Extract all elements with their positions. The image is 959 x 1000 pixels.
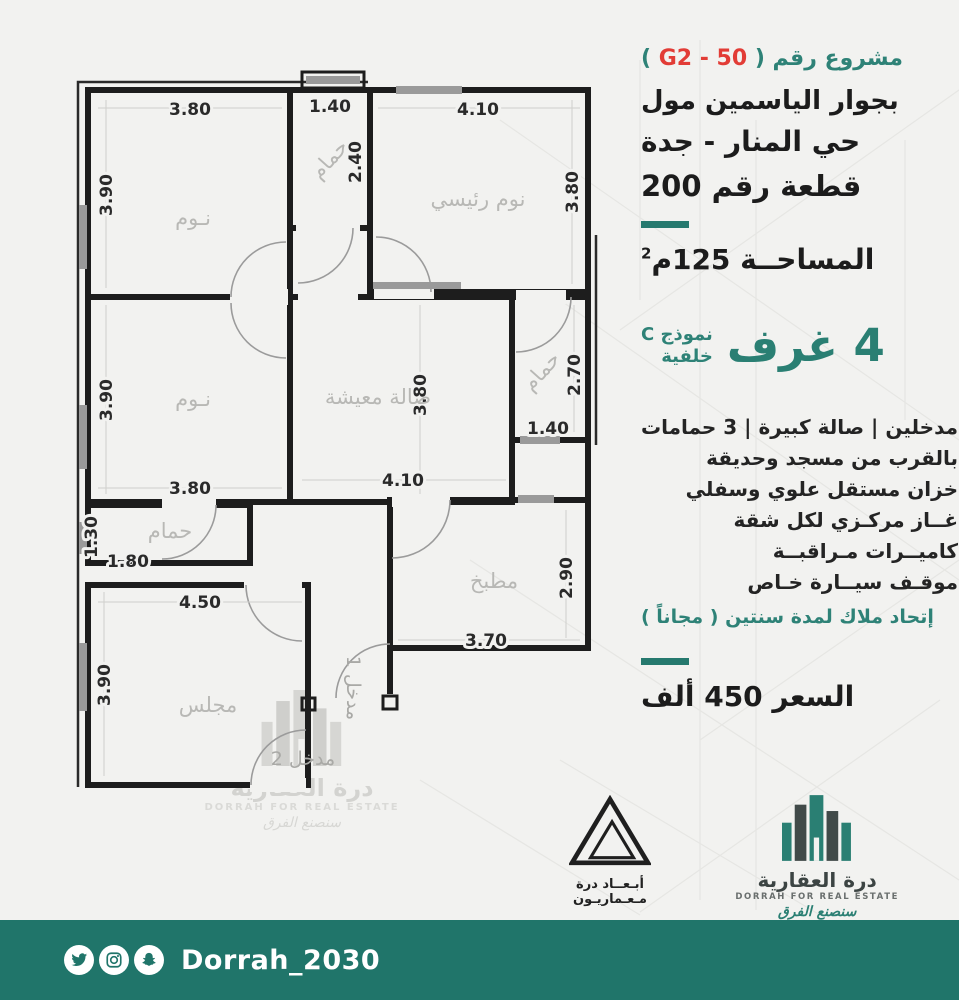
rooms-count: 4 غرف	[727, 322, 885, 370]
dorrah-english-name: DORRAH FOR REAL ESTATE	[735, 892, 899, 902]
dim-master-height: 3.80	[563, 171, 583, 213]
address-line-1: بجوار الياسمين مول	[641, 85, 899, 117]
dorrah-logo: درة العقارية DORRAH FOR REAL ESTATE سنصن…	[735, 795, 899, 920]
dim-bedroom-2-height: 3.90	[97, 379, 117, 421]
instagram-icon	[99, 945, 129, 975]
room-label-bedroom-2: نـوم	[175, 387, 211, 411]
dorrah-arabic-name: درة العقارية	[735, 868, 899, 892]
door-arc-bath-right	[516, 297, 571, 352]
social-handle: Dorrah_2030	[181, 945, 380, 976]
room-label-bath-right: حمام	[517, 347, 565, 396]
dim-bath-right-height: 2.70	[565, 354, 585, 396]
door-arc-kitchen	[392, 500, 450, 558]
teal-divider-top	[641, 221, 689, 228]
label-entrance-2: مدخل 2	[271, 748, 335, 770]
area-superscript: 2	[641, 245, 651, 263]
room-label-bath-bottom: حمام	[148, 519, 193, 543]
dim-kitchen-height: 2.90	[557, 557, 577, 599]
feature-item: موقـف سيــارة خـاص	[641, 567, 958, 598]
feature-item: بالقرب من مسجد وحديقة	[641, 443, 958, 474]
feature-item: مدخلين | صالة كبيرة | 3 حمامات	[641, 412, 958, 443]
logos-row: أبـعــاد درة مـعـماريـون درة العقارية DO…	[569, 795, 899, 920]
door-arc-bedroom-1	[231, 242, 286, 297]
wall-cap-living	[373, 282, 461, 289]
address-line-2: حي المنار - جدة	[641, 124, 860, 160]
dim-majlis-width: 4.50	[179, 593, 221, 613]
room-label-master: نوم رئيسي	[431, 187, 526, 211]
floor-plan: 3.80 3.90 1.40 2.40 4.10 3.80 3.90 3.80 …	[58, 60, 643, 795]
model-row: 4 غرف نموذج C خلفية	[641, 322, 885, 370]
owners-union-note: إتحاد ملاك لمدة سنتين ( مجاناً )	[641, 606, 934, 628]
project-prefix: مشروع رقم (	[755, 46, 903, 71]
dim-bath-right-width: 1.40	[527, 419, 569, 439]
door-arc-bath-top	[298, 228, 353, 283]
dim-majlis-height: 3.90	[95, 664, 115, 706]
dorrah-tagline: سنصنع الفرق	[735, 904, 899, 920]
feature-item: كاميــرات مـراقبــة	[641, 536, 958, 567]
feature-item: خزان مستقل علوي وسفلي	[641, 474, 958, 505]
project-code: G2 - 50	[659, 46, 747, 71]
project-number-line: مشروع رقم ( G2 - 50 )	[641, 46, 903, 71]
area-text: المساحــة 125م2	[641, 243, 874, 276]
area-label: المساحــة 125م	[651, 243, 874, 276]
price-text: السعر 450 ألف	[641, 680, 854, 713]
dim-master-width: 4.10	[457, 100, 499, 120]
model-line-1: نموذج C	[641, 324, 713, 346]
plan-outer-boundary	[78, 82, 368, 787]
model-line-2: خلفية	[641, 346, 713, 368]
footer-bar: Dorrah_2030	[0, 920, 959, 1000]
door-arc-majlis	[246, 585, 302, 641]
dim-bedroom-1-height: 3.90	[97, 174, 117, 216]
snapchat-icon	[134, 945, 164, 975]
window-bedroom-1	[79, 205, 87, 269]
door-jamb-entrance-1	[383, 696, 397, 709]
room-label-majlis: مجلس	[179, 693, 238, 717]
dim-bath-bottom-height: 1.30	[82, 516, 102, 558]
watermark-tagline: سنصنع الفرق	[192, 815, 412, 831]
room-label-kitchen: مطبخ	[470, 569, 518, 593]
window-bath-top	[306, 76, 360, 84]
dim-living-width: 4.10	[382, 471, 424, 491]
abaad-triangle-icon	[569, 795, 651, 867]
dorrah-buildings-icon	[782, 795, 852, 861]
twitter-icon	[64, 945, 94, 975]
dim-bedroom-1-width: 3.80	[169, 100, 211, 120]
window-majlis	[79, 643, 87, 711]
abaad-logo: أبـعــاد درة مـعـماريـون	[569, 795, 651, 907]
room-bedroom-1	[88, 90, 290, 297]
door-arc-bedroom-2	[231, 303, 286, 358]
window-bedroom-2	[79, 405, 87, 469]
info-panel: مشروع رقم ( G2 - 50 ) بجوار الياسمين مول…	[641, 46, 891, 713]
features-list: مدخلين | صالة كبيرة | 3 حمامات بالقرب من…	[641, 412, 958, 598]
window-master	[396, 86, 462, 94]
dim-bedroom-2-width: 3.80	[169, 479, 211, 499]
abaad-name-line-2: مـعـماريـون	[569, 892, 651, 907]
address-line-3: قطعة رقم 200	[641, 168, 861, 204]
watermark-english-name: DORRAH FOR REAL ESTATE	[192, 802, 412, 813]
project-suffix: )	[641, 46, 651, 71]
model-type: نموذج C خلفية	[641, 324, 713, 368]
window-kitchen	[518, 495, 554, 503]
dim-bath-bottom-width: 1.80	[107, 552, 149, 572]
dim-kitchen-width: 3.70	[465, 631, 507, 651]
abaad-name-line-1: أبـعــاد درة	[569, 877, 651, 892]
dim-bath-top-width: 1.40	[309, 97, 351, 117]
room-label-bedroom-1: نـوم	[175, 206, 211, 230]
teal-divider-bottom	[641, 658, 689, 665]
feature-item: غــاز مركـزي لكل شقة	[641, 505, 958, 536]
room-label-living: صالة معيشة	[325, 385, 431, 409]
label-entrance-1: مدخل 1	[342, 656, 364, 720]
